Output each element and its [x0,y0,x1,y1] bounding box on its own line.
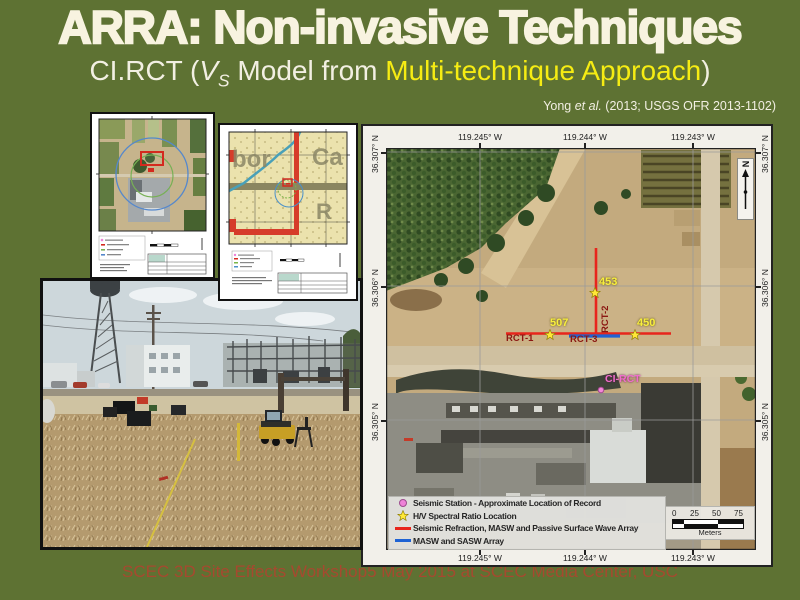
scale-bar-unit: Meters [666,528,754,537]
axis-tick [381,286,386,288]
rct3-label: RCT-3 [570,334,597,345]
seismic-station-marker [598,387,604,393]
axis-tick [381,152,386,154]
rct2-label: RCT-2 [600,306,611,333]
legend-row: Seismic Refraction, MASW and Passive Sur… [389,522,665,535]
hv-label-453: 453 [599,276,617,288]
topo-label-bor: bor [232,146,271,173]
legend-label: Seismic Station - Approximate Location o… [413,498,601,508]
inset-topo-map-thumbnail: bor Ca R [218,123,358,301]
slide-subtitle: CI.RCT (VS Model from Multi-technique Ap… [0,55,800,92]
hv-label-450: 450 [637,317,655,329]
citation: Yong et al. (2013; USGS OFR 2013-1102) [543,99,776,113]
topo-label-ca: Ca [312,144,343,171]
north-label: N [741,161,751,168]
mini-titleblock [278,273,347,293]
scale-bar: 0 25 50 75 Meters [665,506,755,540]
y-axis-label: 36.307° N [370,128,380,180]
y-axis-label: 36.306° N [760,262,770,314]
subtitle-pre: CI.RCT ( [89,55,199,86]
axis-tick [381,420,386,422]
x-axis-label: 119.245° W [448,132,512,142]
inset-satellite-map-thumbnail [90,112,215,279]
topo-label-r: R [316,199,332,224]
survey-stake [237,423,240,461]
white-building [126,345,190,387]
y-axis-label: 36.305° N [370,396,380,448]
axis-tick [692,143,694,148]
legend-label: Seismic Refraction, MASW and Passive Sur… [413,523,638,533]
subtitle-post: ) [701,55,710,86]
east-west-road [386,346,756,365]
mini-legend [232,251,272,284]
axis-tick [584,143,586,148]
hv-star-icon [393,510,413,522]
inset-topo-map-graphic: bor Ca R [220,125,356,299]
map-legend: Seismic Station - Approximate Location o… [388,496,666,550]
legend-row: Seismic Station - Approximate Location o… [389,497,665,510]
field-photo-graphic [43,281,360,547]
legend-row: MASW and SASW Array [389,535,665,548]
red-array-line-icon [393,527,413,530]
mini-scalebar [280,259,304,261]
north-arrow: N [737,158,754,220]
x-axis-label: 119.243° W [661,132,725,142]
mini-scalebar [150,244,178,247]
legend-label: MASW and SASW Array [413,536,504,546]
dirt-road [43,396,360,414]
vs-variable: VS [199,55,229,86]
axis-tick [479,143,481,148]
rct1-label: RCT-1 [506,333,533,344]
subtitle-highlight: Multi-technique Approach [385,55,701,86]
station-label-ci-rct: CI-RCT [605,373,641,385]
x-axis-label: 119.243° W [661,553,725,563]
y-axis-label: 36.307° N [760,128,770,180]
dirt-mound [390,289,442,311]
x-axis-label: 119.245° W [448,553,512,563]
slide-title: ARRA: Non-invasive Techniques [0,0,800,54]
subtitle-mid: Model from [230,55,386,86]
y-axis-label: 36.306° N [370,262,380,314]
y-axis-label: 36.305° N [760,396,770,448]
x-axis-label: 119.244° W [553,553,617,563]
seismic-station-dot-icon [393,499,413,507]
mini-legend [99,236,145,260]
road [99,174,206,177]
hv-label-507: 507 [550,317,568,329]
x-axis-label: 119.244° W [553,132,617,142]
legend-row: H/V Spectral Ratio Location [389,510,665,523]
scale-bar-ticks: 0 25 50 75 [672,509,748,518]
main-map-page: 119.245° W 119.244° W 119.243° W 119.245… [361,124,773,567]
field-site-photo [40,278,363,550]
railroad [43,389,360,396]
legend-label: H/V Spectral Ratio Location [413,511,516,521]
satellite-map-graphic [386,148,756,550]
dry-grass-field [43,414,360,547]
blue-array-line-icon [393,539,413,542]
inset-satellite-map-graphic [92,114,213,277]
